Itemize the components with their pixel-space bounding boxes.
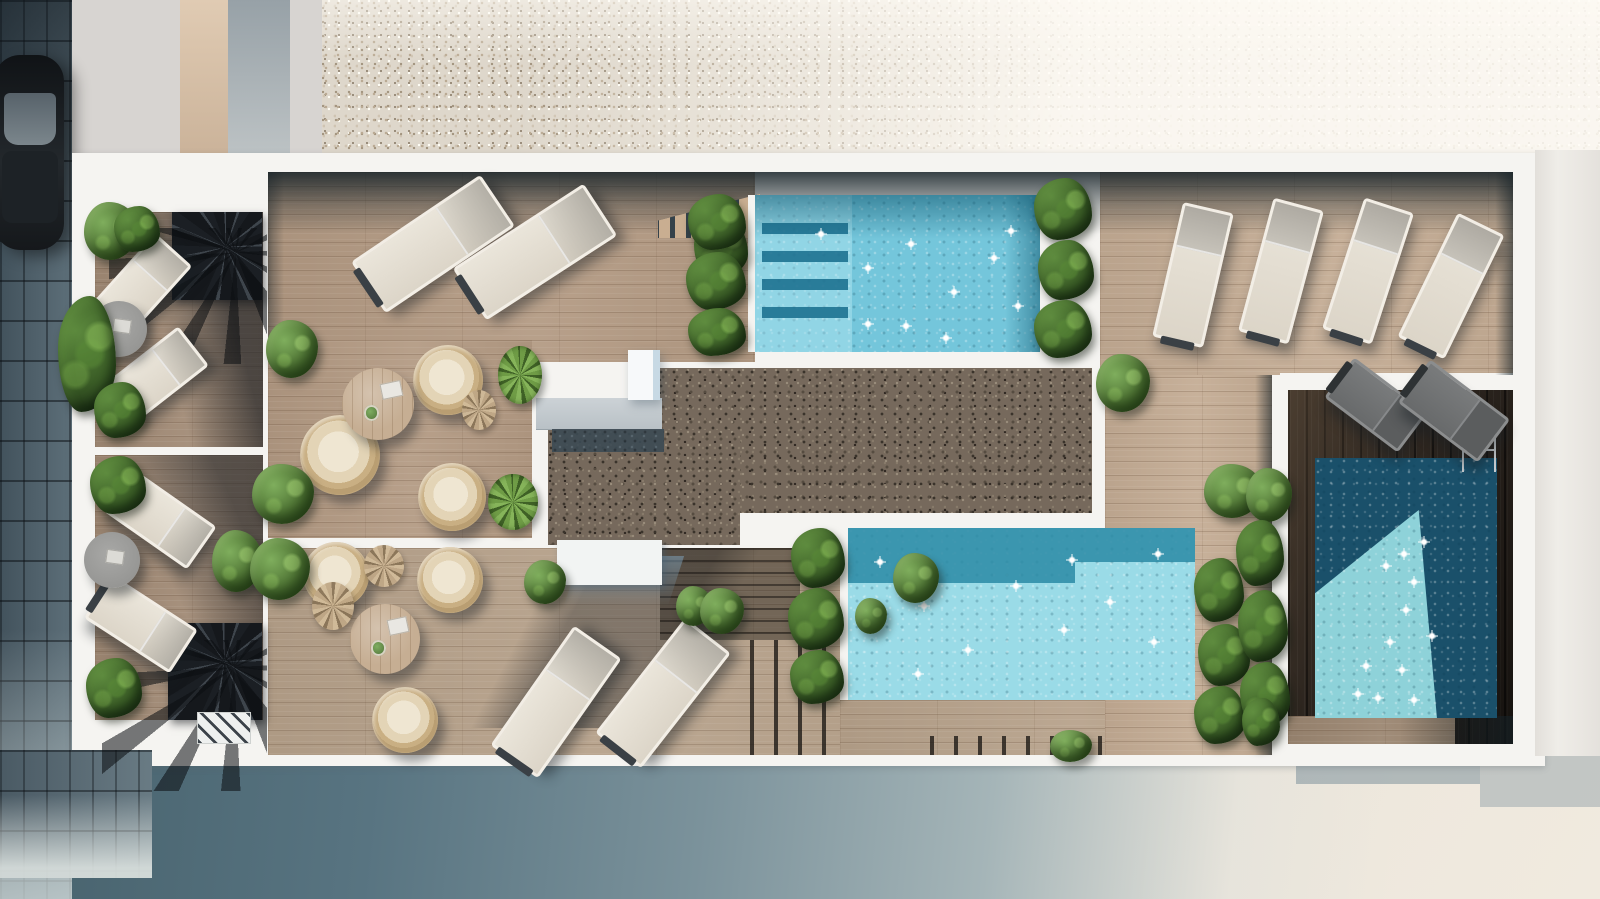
water-sparkle	[912, 668, 924, 680]
plant	[1238, 590, 1288, 662]
sun-lounger	[1322, 197, 1414, 344]
plant	[90, 456, 146, 514]
plant	[364, 545, 404, 587]
water-sparkle	[948, 286, 960, 298]
water-sparkle	[1360, 660, 1372, 672]
plant	[855, 598, 887, 634]
water-sparkle	[988, 252, 1000, 264]
water-sparkle	[1400, 604, 1412, 616]
water-sparkle	[1384, 636, 1396, 648]
water-sparkle	[905, 238, 917, 250]
plant	[266, 320, 318, 378]
water-sparkle	[1418, 536, 1430, 548]
water-sparkle	[1152, 548, 1164, 560]
plant	[688, 194, 746, 250]
water-sparkle	[1398, 548, 1410, 560]
water-sparkle	[1012, 300, 1024, 312]
water-sparkle	[900, 320, 912, 332]
plant	[1194, 686, 1246, 744]
water-sparkle	[1104, 596, 1116, 608]
plant	[1034, 178, 1092, 240]
plant	[700, 588, 744, 634]
water-sparkle	[1066, 554, 1078, 566]
plant	[1038, 240, 1094, 300]
water-sparkle	[940, 332, 952, 344]
sun-lounger	[595, 618, 731, 769]
water-sparkle	[815, 228, 827, 240]
plant	[1096, 354, 1150, 412]
plant	[893, 553, 939, 603]
rattan-chair	[417, 547, 483, 613]
plant	[252, 464, 314, 524]
water-sparkle	[1372, 692, 1384, 704]
plant	[791, 528, 845, 588]
scene-items	[0, 0, 1600, 899]
round-table	[350, 604, 420, 674]
water-sparkle	[1426, 630, 1438, 642]
rattan-chair	[418, 463, 486, 531]
rattan-chair	[372, 687, 438, 753]
plant	[250, 538, 310, 600]
plant	[686, 252, 746, 310]
sun-lounger	[490, 626, 621, 779]
water-sparkle	[1058, 624, 1070, 636]
plant	[688, 308, 746, 356]
plant	[1050, 730, 1092, 762]
plant	[312, 582, 354, 630]
water-sparkle	[1148, 636, 1160, 648]
water-sparkle	[962, 644, 974, 656]
round-table	[84, 532, 140, 588]
plant	[114, 206, 160, 252]
water-sparkle	[1380, 560, 1392, 572]
water-sparkle	[1408, 576, 1420, 588]
plant	[1034, 300, 1092, 358]
plant	[86, 658, 142, 718]
plant	[790, 650, 844, 704]
plant	[462, 390, 496, 430]
plant	[1194, 558, 1244, 622]
sun-lounger	[84, 574, 198, 673]
water-sparkle	[1408, 694, 1420, 706]
plant	[488, 474, 538, 530]
plant	[524, 560, 566, 604]
plant	[788, 588, 844, 650]
rooftop-aerial-render	[0, 0, 1600, 899]
water-sparkle	[1352, 688, 1364, 700]
water-sparkle	[862, 262, 874, 274]
sun-lounger	[1397, 213, 1504, 360]
plant	[94, 382, 146, 438]
round-table	[342, 368, 414, 440]
water-sparkle	[1005, 225, 1017, 237]
water-sparkle	[1010, 580, 1022, 592]
water-sparkle	[862, 318, 874, 330]
plant	[498, 346, 542, 404]
plant	[1236, 520, 1284, 586]
sun-lounger	[1238, 198, 1324, 345]
plant	[1242, 698, 1280, 746]
sun-lounger	[1152, 202, 1234, 348]
water-sparkle	[874, 556, 886, 568]
sun-lounger	[1398, 359, 1510, 462]
water-sparkle	[1396, 664, 1408, 676]
plant	[1246, 468, 1292, 522]
